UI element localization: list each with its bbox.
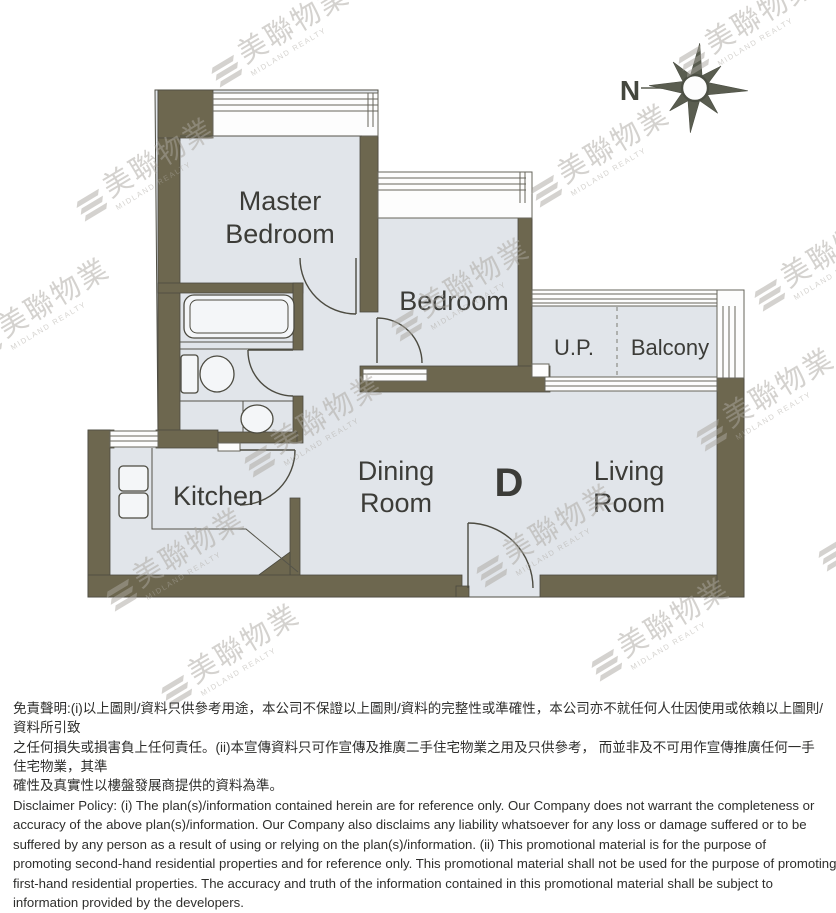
bedroom-sill <box>363 369 427 381</box>
floor-plan: Master Bedroom Bedroom U.P. Balcony Kitc… <box>0 0 836 700</box>
kitchen-window <box>110 431 158 447</box>
label-dining-1: Dining <box>358 456 435 486</box>
label-master-bedroom-2: Bedroom <box>225 219 335 249</box>
label-master-bedroom-1: Master <box>239 186 322 216</box>
label-living-1: Living <box>594 456 665 486</box>
toilet <box>181 355 234 393</box>
label-dining-2: Room <box>360 488 432 518</box>
compass-star-icon <box>649 43 748 133</box>
balcony-step <box>532 364 549 377</box>
disclaimer-en-block: Disclaimer Policy: (i) The plan(s)/infor… <box>13 796 826 913</box>
bathtub <box>184 295 294 338</box>
washbasin <box>241 405 273 433</box>
disclaimer-en-line: suffered by any person as a result of us… <box>13 835 826 855</box>
disclaimer-zh-line: 之任何損失或損害負上任何責任。(ii)本宣傳資料只可作宣傳及推廣二手住宅物業之用… <box>13 738 826 777</box>
compass-rose: N <box>620 43 748 133</box>
page: { "plan": { "labels": { "master_1": "Mas… <box>0 0 836 875</box>
disclaimer-en-line: promoting second-hand residential proper… <box>13 854 826 874</box>
disclaimer-zh-line: 免責聲明:(i)以上圖則/資料只供參考用途，本公司不保證以上圖則/資料的完整性或… <box>13 699 826 738</box>
label-bedroom: Bedroom <box>399 286 509 316</box>
balcony-door-window <box>545 377 717 391</box>
disclaimer-en-line: information provided by the developers. <box>13 893 826 913</box>
kitchen-door-sill <box>218 443 240 451</box>
disclaimer-zh-line: 確性及真實性以樓盤發展商提供的資料為準。 <box>13 776 826 795</box>
master-bedroom-window <box>213 93 378 136</box>
disclaimer-en-line: Disclaimer Policy: (i) The plan(s)/infor… <box>13 796 826 816</box>
disclaimer-en-line: accuracy of the above plan(s)/informatio… <box>13 815 826 835</box>
label-kitchen: Kitchen <box>173 481 263 511</box>
label-balcony: Balcony <box>631 335 709 360</box>
label-living-2: Room <box>593 488 665 518</box>
label-unit-d: D <box>495 461 524 505</box>
label-up: U.P. <box>554 335 594 360</box>
disclaimer-en-line: first-hand residential properties. The a… <box>13 874 826 894</box>
disclaimer-block: 免責聲明:(i)以上圖則/資料只供參考用途，本公司不保證以上圖則/資料的完整性或… <box>13 699 826 913</box>
compass-north-label: N <box>620 75 640 106</box>
bedroom-window <box>378 172 532 218</box>
